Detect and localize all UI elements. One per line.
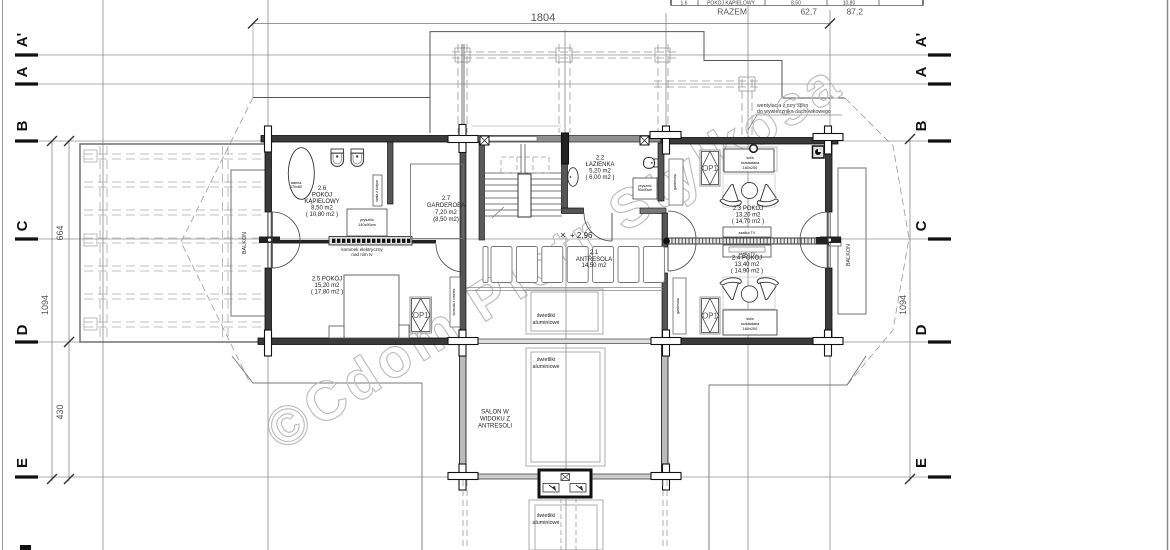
svg-text:664: 664 xyxy=(55,225,65,240)
svg-text:87,2: 87,2 xyxy=(846,7,863,17)
svg-text:szafka TV: szafka TV xyxy=(739,231,756,235)
svg-text:8,50 m2: 8,50 m2 xyxy=(311,206,333,212)
svg-text:5,20 m2: 5,20 m2 xyxy=(589,169,611,175)
svg-text:( 10,80 m2 ): ( 10,80 m2 ) xyxy=(306,212,338,218)
svg-text:C: C xyxy=(913,220,930,231)
svg-text:13,20 m2: 13,20 m2 xyxy=(735,213,761,219)
svg-text:A': A' xyxy=(913,33,930,47)
svg-text:WIDOKU Z: WIDOKU Z xyxy=(480,417,510,423)
svg-text:2.3 POKÓJ: 2.3 POKÓJ xyxy=(733,205,763,212)
svg-text:140x90cm: 140x90cm xyxy=(358,223,376,227)
svg-text:A': A' xyxy=(14,33,31,47)
svg-text:szafa z dużym: szafa z dużym xyxy=(375,180,379,202)
svg-text:sofa: sofa xyxy=(746,156,754,160)
svg-text:OP1: OP1 xyxy=(413,311,429,320)
svg-text:14,50 m2: 14,50 m2 xyxy=(581,263,607,269)
svg-text:E: E xyxy=(913,458,930,468)
svg-text:D: D xyxy=(913,324,930,335)
svg-text:aluminiowe: aluminiowe xyxy=(533,364,560,370)
svg-text:nad nim tv: nad nim tv xyxy=(351,252,373,257)
svg-text:garderoba: garderoba xyxy=(673,174,677,190)
svg-text:2.1: 2.1 xyxy=(590,250,599,256)
svg-text:2.4 POKÓJ: 2.4 POKÓJ xyxy=(732,255,762,262)
svg-text:( 14,70 m2 ): ( 14,70 m2 ) xyxy=(732,219,764,225)
svg-text:B: B xyxy=(14,120,31,131)
svg-text:ŁAZIENKA: ŁAZIENKA xyxy=(585,162,614,168)
svg-text:garderoba: garderoba xyxy=(676,298,680,314)
svg-text:rozkładana: rozkładana xyxy=(741,322,760,326)
svg-text:komoda z lustrem: komoda z lustrem xyxy=(452,288,456,315)
svg-text:15,20 m2: 15,20 m2 xyxy=(314,283,340,289)
svg-text:90x90cm: 90x90cm xyxy=(638,188,653,192)
svg-text:GARDEROBA: GARDEROBA xyxy=(427,203,465,209)
svg-text:prysznic: prysznic xyxy=(360,218,374,222)
svg-text:D: D xyxy=(14,324,31,335)
svg-text:170x80: 170x80 xyxy=(290,185,302,189)
svg-text:E: E xyxy=(14,458,31,468)
svg-text:B: B xyxy=(913,120,930,131)
svg-text:2.7: 2.7 xyxy=(442,196,451,202)
svg-text:świetliki: świetliki xyxy=(537,357,556,363)
svg-text:160x200: 160x200 xyxy=(743,327,758,331)
svg-text:OP1: OP1 xyxy=(702,312,718,321)
svg-text:świetliki: świetliki xyxy=(537,513,556,519)
svg-text:2.2: 2.2 xyxy=(596,156,605,162)
svg-text:1.6: 1.6 xyxy=(681,1,688,7)
svg-text:( 14,90 m2 ): ( 14,90 m2 ) xyxy=(731,269,763,275)
svg-text:( 6,00 m2 ): ( 6,00 m2 ) xyxy=(585,175,614,181)
svg-text:(8,50 m2): (8,50 m2) xyxy=(433,217,459,223)
svg-text:7,20 m2: 7,20 m2 xyxy=(435,210,457,216)
svg-text:A: A xyxy=(913,66,930,77)
svg-text:A: A xyxy=(14,66,31,77)
svg-text:sofa: sofa xyxy=(746,317,754,321)
svg-text:1804: 1804 xyxy=(531,12,555,24)
svg-text:1094: 1094 xyxy=(40,295,50,315)
svg-text:świetliki: świetliki xyxy=(537,313,556,319)
svg-text:160x200: 160x200 xyxy=(743,166,758,170)
svg-text:KĄPIELOWY: KĄPIELOWY xyxy=(304,199,339,205)
svg-text:rozkładana: rozkładana xyxy=(741,161,760,165)
svg-text:430: 430 xyxy=(55,404,65,419)
svg-text:BALKON: BALKON xyxy=(242,232,248,254)
svg-text:OP1: OP1 xyxy=(702,164,718,173)
svg-text:aluminiowe: aluminiowe xyxy=(533,520,560,526)
svg-text:ANTRESOLI: ANTRESOLI xyxy=(478,424,512,430)
svg-text:POKÓJ: POKÓJ xyxy=(312,192,332,199)
svg-text:( 17,80 m2 ): ( 17,80 m2 ) xyxy=(311,290,343,296)
svg-text:SALON W: SALON W xyxy=(481,410,509,416)
svg-text:2.6: 2.6 xyxy=(318,186,327,192)
svg-text:C: C xyxy=(14,220,31,231)
svg-text:13,40 m2: 13,40 m2 xyxy=(734,262,760,268)
svg-text:BALKON: BALKON xyxy=(846,244,852,266)
svg-text:2.5 POKÓJ: 2.5 POKÓJ xyxy=(312,276,342,283)
svg-text:RAZEM: RAZEM xyxy=(717,7,747,17)
svg-text:1094: 1094 xyxy=(898,295,908,315)
svg-text:62,7: 62,7 xyxy=(800,7,817,17)
svg-text:aluminiowe: aluminiowe xyxy=(533,320,560,326)
svg-text:+ 2,96: + 2,96 xyxy=(570,231,593,240)
